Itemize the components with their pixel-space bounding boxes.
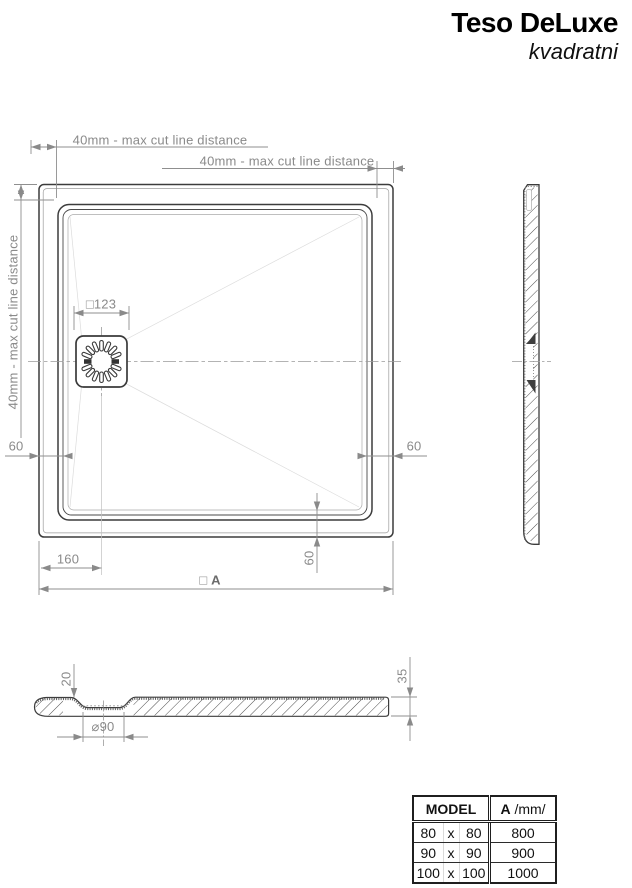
table-row: 80x80 800 <box>413 822 556 843</box>
model-table: MODEL A /mm/ 80x80 800 90x90 900 100x100… <box>412 795 557 884</box>
dim-label-wall-left: 60 <box>9 439 24 454</box>
header-model: MODEL <box>413 796 490 822</box>
model-cell: 80x80 <box>414 823 488 842</box>
plan-view <box>28 185 404 576</box>
a-value: 800 <box>490 822 557 843</box>
section-hatch-right <box>134 698 388 715</box>
bottom-section-view <box>35 697 389 746</box>
dim-label-top-right: 40mm - max cut line distance <box>200 154 375 169</box>
a-value: 900 <box>490 843 557 863</box>
dim-label-wall-right: 60 <box>407 439 422 454</box>
product-name: Teso DeLuxe <box>451 8 618 39</box>
title-block: Teso DeLuxe kvadratni <box>451 8 618 64</box>
rim-groove <box>526 190 531 211</box>
product-variant: kvadratni <box>451 39 618 64</box>
dim-label-drain-offset: 160 <box>57 552 79 567</box>
table-row: 100x100 1000 <box>413 863 556 884</box>
table-row: 90x90 900 <box>413 843 556 863</box>
drain-key-right <box>112 359 120 364</box>
dim-label-top-left: 40mm - max cut line distance <box>73 133 248 148</box>
dim-label-total-height: 35 <box>395 669 410 684</box>
drain-section-gap <box>525 344 533 380</box>
table-header-row: MODEL A /mm/ <box>413 796 556 822</box>
side-view <box>512 185 551 545</box>
dim-label-drain-flange: □123 <box>86 297 116 312</box>
drain-key-left <box>84 359 92 364</box>
overall-a: A <box>211 573 221 588</box>
header-a-unit: /mm/ <box>511 801 546 817</box>
header-a: A /mm/ <box>490 796 557 822</box>
drain-grate <box>76 336 127 387</box>
drawing-sheet: Teso DeLuxe kvadratni 40mm - max cut lin… <box>0 0 632 888</box>
dim-label-recess-depth: 20 <box>59 672 74 687</box>
model-cell: 100x100 <box>414 863 488 882</box>
section-hatch-left <box>36 699 63 716</box>
overall-square-symbol: □ <box>199 573 207 588</box>
model-cell: 90x90 <box>414 843 488 862</box>
dim-label-left-vertical: 40mm - max cut line distance <box>6 235 21 410</box>
dim-label-overall: □ A <box>199 573 220 588</box>
dim-label-drain-diameter: ⌀90 <box>92 719 115 735</box>
a-value: 1000 <box>490 863 557 884</box>
dim-label-wall-bottom: 60 <box>302 551 317 566</box>
